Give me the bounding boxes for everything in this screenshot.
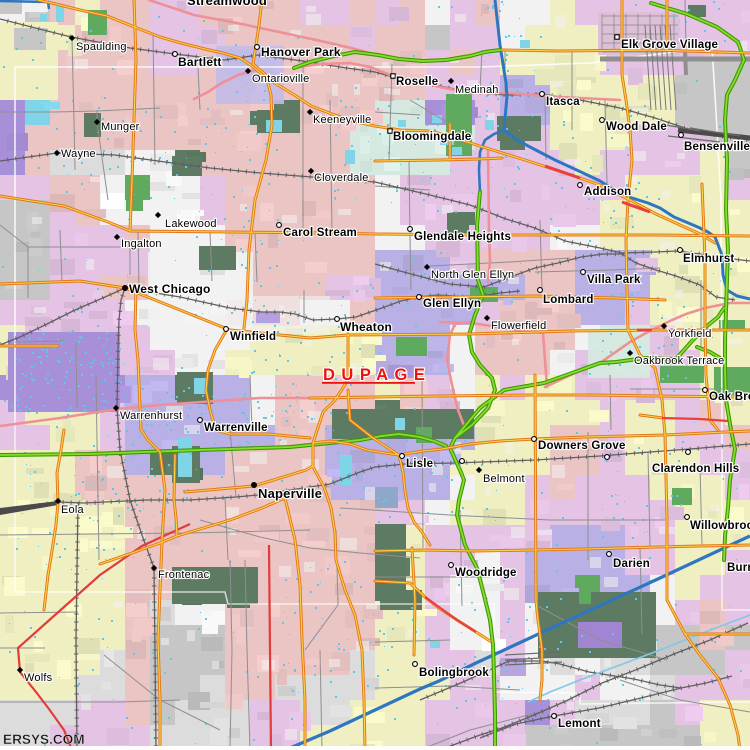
svg-text:Elmhurst: Elmhurst xyxy=(683,253,734,265)
svg-text:Warrenville: Warrenville xyxy=(204,422,268,434)
svg-text:Lisle: Lisle xyxy=(406,458,433,470)
svg-text:Bensenville: Bensenville xyxy=(684,141,750,153)
svg-text:Cloverdale: Cloverdale xyxy=(314,172,369,184)
svg-text:West Chicago: West Chicago xyxy=(129,282,211,296)
svg-text:Woodridge: Woodridge xyxy=(455,567,517,579)
svg-text:Lemont: Lemont xyxy=(558,718,601,730)
svg-text:Lombard: Lombard xyxy=(543,294,594,306)
svg-text:Addison: Addison xyxy=(584,186,631,198)
svg-text:Belmont: Belmont xyxy=(483,473,525,485)
svg-text:Bartlett: Bartlett xyxy=(178,55,222,69)
svg-text:Downers Grove: Downers Grove xyxy=(538,440,626,452)
svg-text:Spaulding: Spaulding xyxy=(76,41,127,53)
svg-text:Oak Brook: Oak Brook xyxy=(709,391,750,403)
svg-text:Glendale Heights: Glendale Heights xyxy=(414,231,511,243)
svg-text:Keeneyville: Keeneyville xyxy=(313,114,371,126)
svg-text:DUPAGE: DUPAGE xyxy=(323,366,431,384)
svg-text:Bloomingdale: Bloomingdale xyxy=(393,131,471,143)
svg-text:Frontenac: Frontenac xyxy=(158,569,210,581)
svg-text:Carol Stream: Carol Stream xyxy=(283,227,357,239)
svg-text:Wheaton: Wheaton xyxy=(340,320,392,334)
svg-text:Ingalton: Ingalton xyxy=(121,238,162,250)
svg-text:Villa Park: Villa Park xyxy=(587,274,641,286)
svg-text:Oakbrook Terrace: Oakbrook Terrace xyxy=(634,355,724,367)
svg-text:Munger: Munger xyxy=(101,121,140,133)
svg-text:Eola: Eola xyxy=(61,504,84,516)
svg-text:Lakewood: Lakewood xyxy=(165,218,217,230)
svg-text:Roselle: Roselle xyxy=(396,76,438,88)
svg-text:Yorkfield: Yorkfield xyxy=(668,328,712,340)
svg-text:North Glen Ellyn: North Glen Ellyn xyxy=(431,269,514,281)
svg-text:ERSYS.COM: ERSYS.COM xyxy=(3,732,85,747)
svg-text:Wood Dale: Wood Dale xyxy=(606,121,667,133)
svg-text:Medinah: Medinah xyxy=(455,84,499,96)
svg-text:Ontarioville: Ontarioville xyxy=(252,73,309,85)
svg-text:Itasca: Itasca xyxy=(546,96,580,108)
svg-text:Winfield: Winfield xyxy=(230,331,276,343)
svg-text:Darien: Darien xyxy=(613,558,650,570)
svg-text:Glen Ellyn: Glen Ellyn xyxy=(423,298,481,310)
svg-text:Naperville: Naperville xyxy=(258,486,322,501)
svg-text:Willowbrook: Willowbrook xyxy=(690,520,750,532)
svg-text:Streamwood: Streamwood xyxy=(187,0,267,8)
svg-text:Hanover Park: Hanover Park xyxy=(261,45,341,59)
svg-text:Wolfs: Wolfs xyxy=(24,672,53,684)
svg-text:Warrenhurst: Warrenhurst xyxy=(120,410,182,422)
svg-text:Wayne: Wayne xyxy=(61,148,96,160)
svg-text:Burr: Burr xyxy=(727,562,750,574)
svg-text:Clarendon Hills: Clarendon Hills xyxy=(652,463,739,475)
svg-text:Elk Grove Village: Elk Grove Village xyxy=(621,39,718,51)
svg-text:Bolingbrook: Bolingbrook xyxy=(419,667,489,679)
svg-text:Flowerfield: Flowerfield xyxy=(491,320,546,332)
